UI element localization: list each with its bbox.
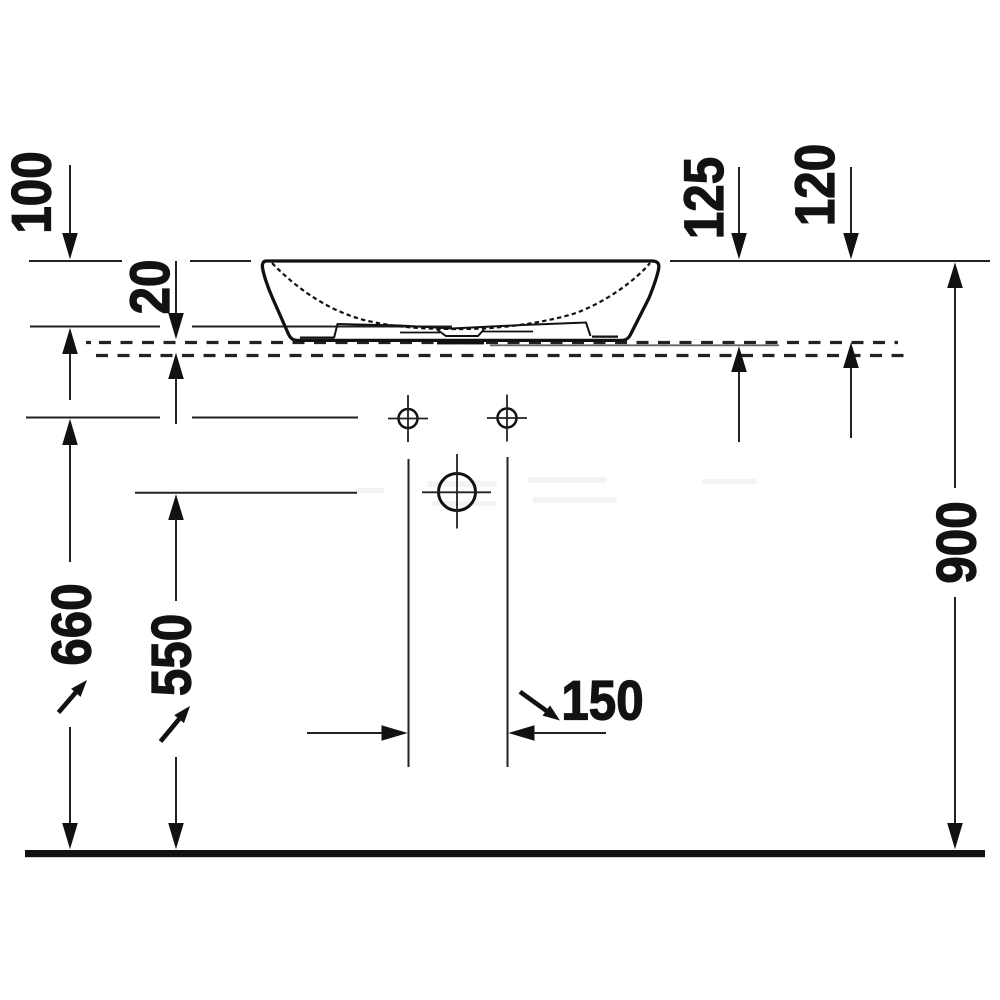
svg-text:120: 120 — [784, 144, 847, 226]
svg-text:125: 125 — [673, 157, 736, 239]
svg-text:100: 100 — [1, 151, 64, 233]
svg-text:660: 660 — [41, 583, 104, 665]
svg-text:550: 550 — [141, 614, 204, 696]
svg-text:150: 150 — [561, 670, 643, 733]
svg-text:900: 900 — [926, 501, 989, 583]
svg-text:20: 20 — [119, 260, 182, 315]
